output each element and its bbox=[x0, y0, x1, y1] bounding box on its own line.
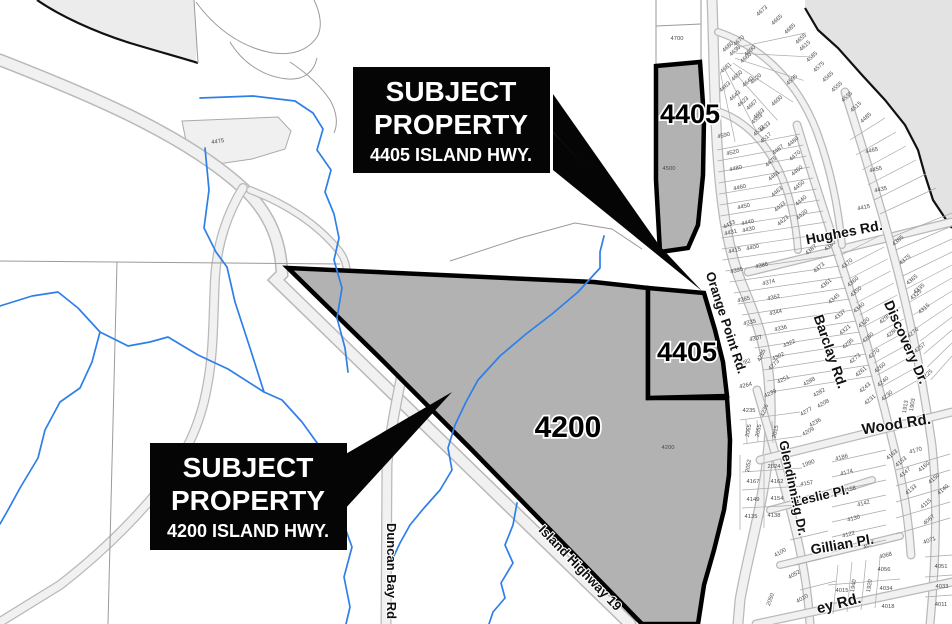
parcel-number-label: 4209 bbox=[801, 426, 815, 438]
parcel-number-label: 1920 bbox=[866, 579, 874, 593]
parcel-number-label: 4034 bbox=[880, 586, 894, 592]
parcel-number-label: 4322 bbox=[782, 339, 796, 350]
parcel-number-label: 4374 bbox=[762, 278, 777, 287]
callout-4405-line3: 4405 ISLAND HWY. bbox=[370, 145, 532, 165]
parcel-number-label: 4455 bbox=[869, 166, 883, 175]
parcel-number-label: 4051 bbox=[935, 564, 948, 570]
parcel-number-label: 4344 bbox=[769, 308, 784, 317]
parcel-number-label: 4100 bbox=[773, 547, 787, 559]
parcel-number-label: 2055 bbox=[755, 424, 764, 438]
parcel-number-label: 4600 bbox=[771, 95, 785, 108]
parcel-number-label: 4345 bbox=[827, 293, 841, 306]
parcel-number-label: 4282 bbox=[812, 387, 826, 399]
parcel-number-label: 4663 bbox=[719, 81, 733, 94]
parcel-number-label: 4480 bbox=[729, 165, 743, 174]
parcel-number-label: 4415 bbox=[857, 204, 871, 213]
callout-4200-line1: SUBJECT bbox=[183, 452, 314, 483]
parcel-number-label: 4460 bbox=[733, 184, 747, 193]
parcel-number-label: 1990 bbox=[802, 459, 816, 469]
parcel-number-label: 4157 bbox=[800, 480, 814, 488]
parcel-number-label: 4665 bbox=[771, 14, 785, 27]
callout-4200-line3: 4200 ISLAND HWY. bbox=[167, 521, 329, 541]
subject-parcel-number: 4405 bbox=[660, 99, 720, 129]
parcel-number-label: 4174 bbox=[840, 468, 855, 477]
parcel-number-label: 2024 bbox=[768, 464, 782, 470]
parcel-number-label: 4288 bbox=[802, 376, 816, 388]
parcel-number-label: 4565 bbox=[822, 71, 836, 84]
parcel-number-label: 4420 bbox=[795, 209, 809, 222]
parcel-number-label: 4251 bbox=[776, 375, 790, 386]
road-old-branch bbox=[0, 188, 243, 622]
parcel-number-label: 2052 bbox=[745, 459, 753, 473]
parcel-number-label: 2015 bbox=[772, 425, 781, 439]
parcel-number-label: 4362 bbox=[767, 294, 781, 303]
parcel-number-label: 4243 bbox=[858, 382, 872, 395]
parcel-number-label: 4011 bbox=[935, 602, 947, 608]
road-name-label: Barclay Rd. bbox=[811, 312, 851, 390]
parcel-number-label: 4170 bbox=[909, 446, 923, 455]
lot-line bbox=[925, 575, 952, 577]
parcel-number-label: 4487 bbox=[771, 144, 785, 157]
parcel-number-label: 4585 bbox=[806, 51, 820, 64]
parcel-number-label: 4277 bbox=[799, 406, 813, 418]
parcel-number-label: 2050 bbox=[766, 593, 776, 607]
parcel-number-label: 4154 bbox=[771, 496, 785, 502]
parcel-number-label: 4685 bbox=[784, 23, 798, 36]
map-canvas: 4700450042004475205046734665468546554615… bbox=[0, 0, 952, 624]
parcel-number-label: 4520 bbox=[726, 149, 740, 158]
parcel-number-label: 4470 bbox=[788, 150, 802, 163]
parcel-number-label: 4465 bbox=[865, 147, 879, 156]
callout-4405-line1: SUBJECT bbox=[386, 76, 517, 107]
parcel-number-label: 4138 bbox=[768, 513, 781, 519]
parcel-number-label: 4235 bbox=[743, 408, 756, 414]
parcel-number-label: 4485 bbox=[860, 112, 874, 125]
parcel-number-label: 4056 bbox=[878, 567, 891, 573]
parcel-number-label: 4167 bbox=[747, 479, 760, 485]
subject-parcel-number: 4405 bbox=[657, 337, 717, 367]
parcel-number-label: 4162 bbox=[771, 479, 784, 485]
parcel-number-label: 4149 bbox=[747, 497, 760, 503]
parcel-number-label: 2065 bbox=[745, 424, 754, 438]
parcel-number-label: 4186 bbox=[835, 453, 849, 462]
lot-line bbox=[924, 330, 952, 354]
parcel-number-label: 4052 bbox=[787, 569, 801, 581]
map-stage: 4700450042004475205046734665468546554615… bbox=[0, 0, 952, 624]
parcel-number-label: 4033 bbox=[936, 584, 949, 590]
parcel-number-label: 4321 bbox=[838, 324, 852, 337]
road-name-label: ey Rd. bbox=[815, 590, 863, 617]
parcel-number-label: 4361 bbox=[819, 278, 833, 291]
parcel-number-label: 4336 bbox=[774, 325, 788, 334]
lot-line bbox=[931, 356, 952, 380]
parcel-number-label: 4460 bbox=[790, 165, 804, 178]
callout-4405: SUBJECT PROPERTY 4405 ISLAND HWY. bbox=[353, 67, 702, 291]
lot-line bbox=[927, 343, 952, 367]
subject-parcel-number: 4200 bbox=[535, 411, 602, 444]
pond-fill bbox=[37, 0, 197, 62]
callout-4405-line2: PROPERTY bbox=[374, 109, 528, 140]
parcel-number-label: 1903 bbox=[909, 398, 917, 412]
parcel-number-label: 4620 bbox=[750, 73, 764, 86]
parcel-number-label: 4337 bbox=[833, 309, 847, 322]
parcel-number-label: 4575 bbox=[813, 61, 827, 74]
parcel-number-label: 4700 bbox=[671, 36, 684, 42]
parcel-number-label: 4200 bbox=[662, 445, 675, 451]
callout-4200-line2: PROPERTY bbox=[171, 485, 325, 516]
parcel-number-label: 4018 bbox=[882, 604, 895, 610]
lot-line bbox=[920, 317, 952, 341]
parcel-number-label: 4068 bbox=[879, 551, 893, 560]
parcel-number-label: 4440 bbox=[794, 195, 808, 208]
parcel-number-label: 4264 bbox=[739, 381, 754, 390]
road-name-label: Duncan Bay Rd bbox=[384, 523, 399, 619]
parcel-lines-topmiddle bbox=[182, 0, 336, 164]
parcel-number-label: 4673 bbox=[756, 5, 770, 18]
parcel-number-label: 4435 bbox=[874, 186, 888, 195]
parcel-number-label: 4135 bbox=[745, 514, 758, 520]
parcel-number-label: 4208 bbox=[816, 398, 830, 410]
lot-line bbox=[903, 252, 952, 276]
road-name-label: Wood Rd. bbox=[861, 411, 933, 439]
parcel-number-label: 4450 bbox=[737, 203, 751, 212]
parcel-number-label: 4231 bbox=[863, 394, 877, 407]
parcel-number-label: 4130 bbox=[847, 514, 861, 523]
parcel-number-label: 4365 bbox=[905, 274, 919, 287]
pond-area bbox=[37, 0, 198, 63]
parcel-number-label: 4500 bbox=[663, 166, 676, 172]
lot-line bbox=[880, 188, 936, 214]
subject-parcel-4405-north bbox=[656, 62, 704, 252]
parcel-number-label: 4375 bbox=[898, 254, 912, 267]
parcel-number-label: 4433 bbox=[773, 201, 787, 214]
